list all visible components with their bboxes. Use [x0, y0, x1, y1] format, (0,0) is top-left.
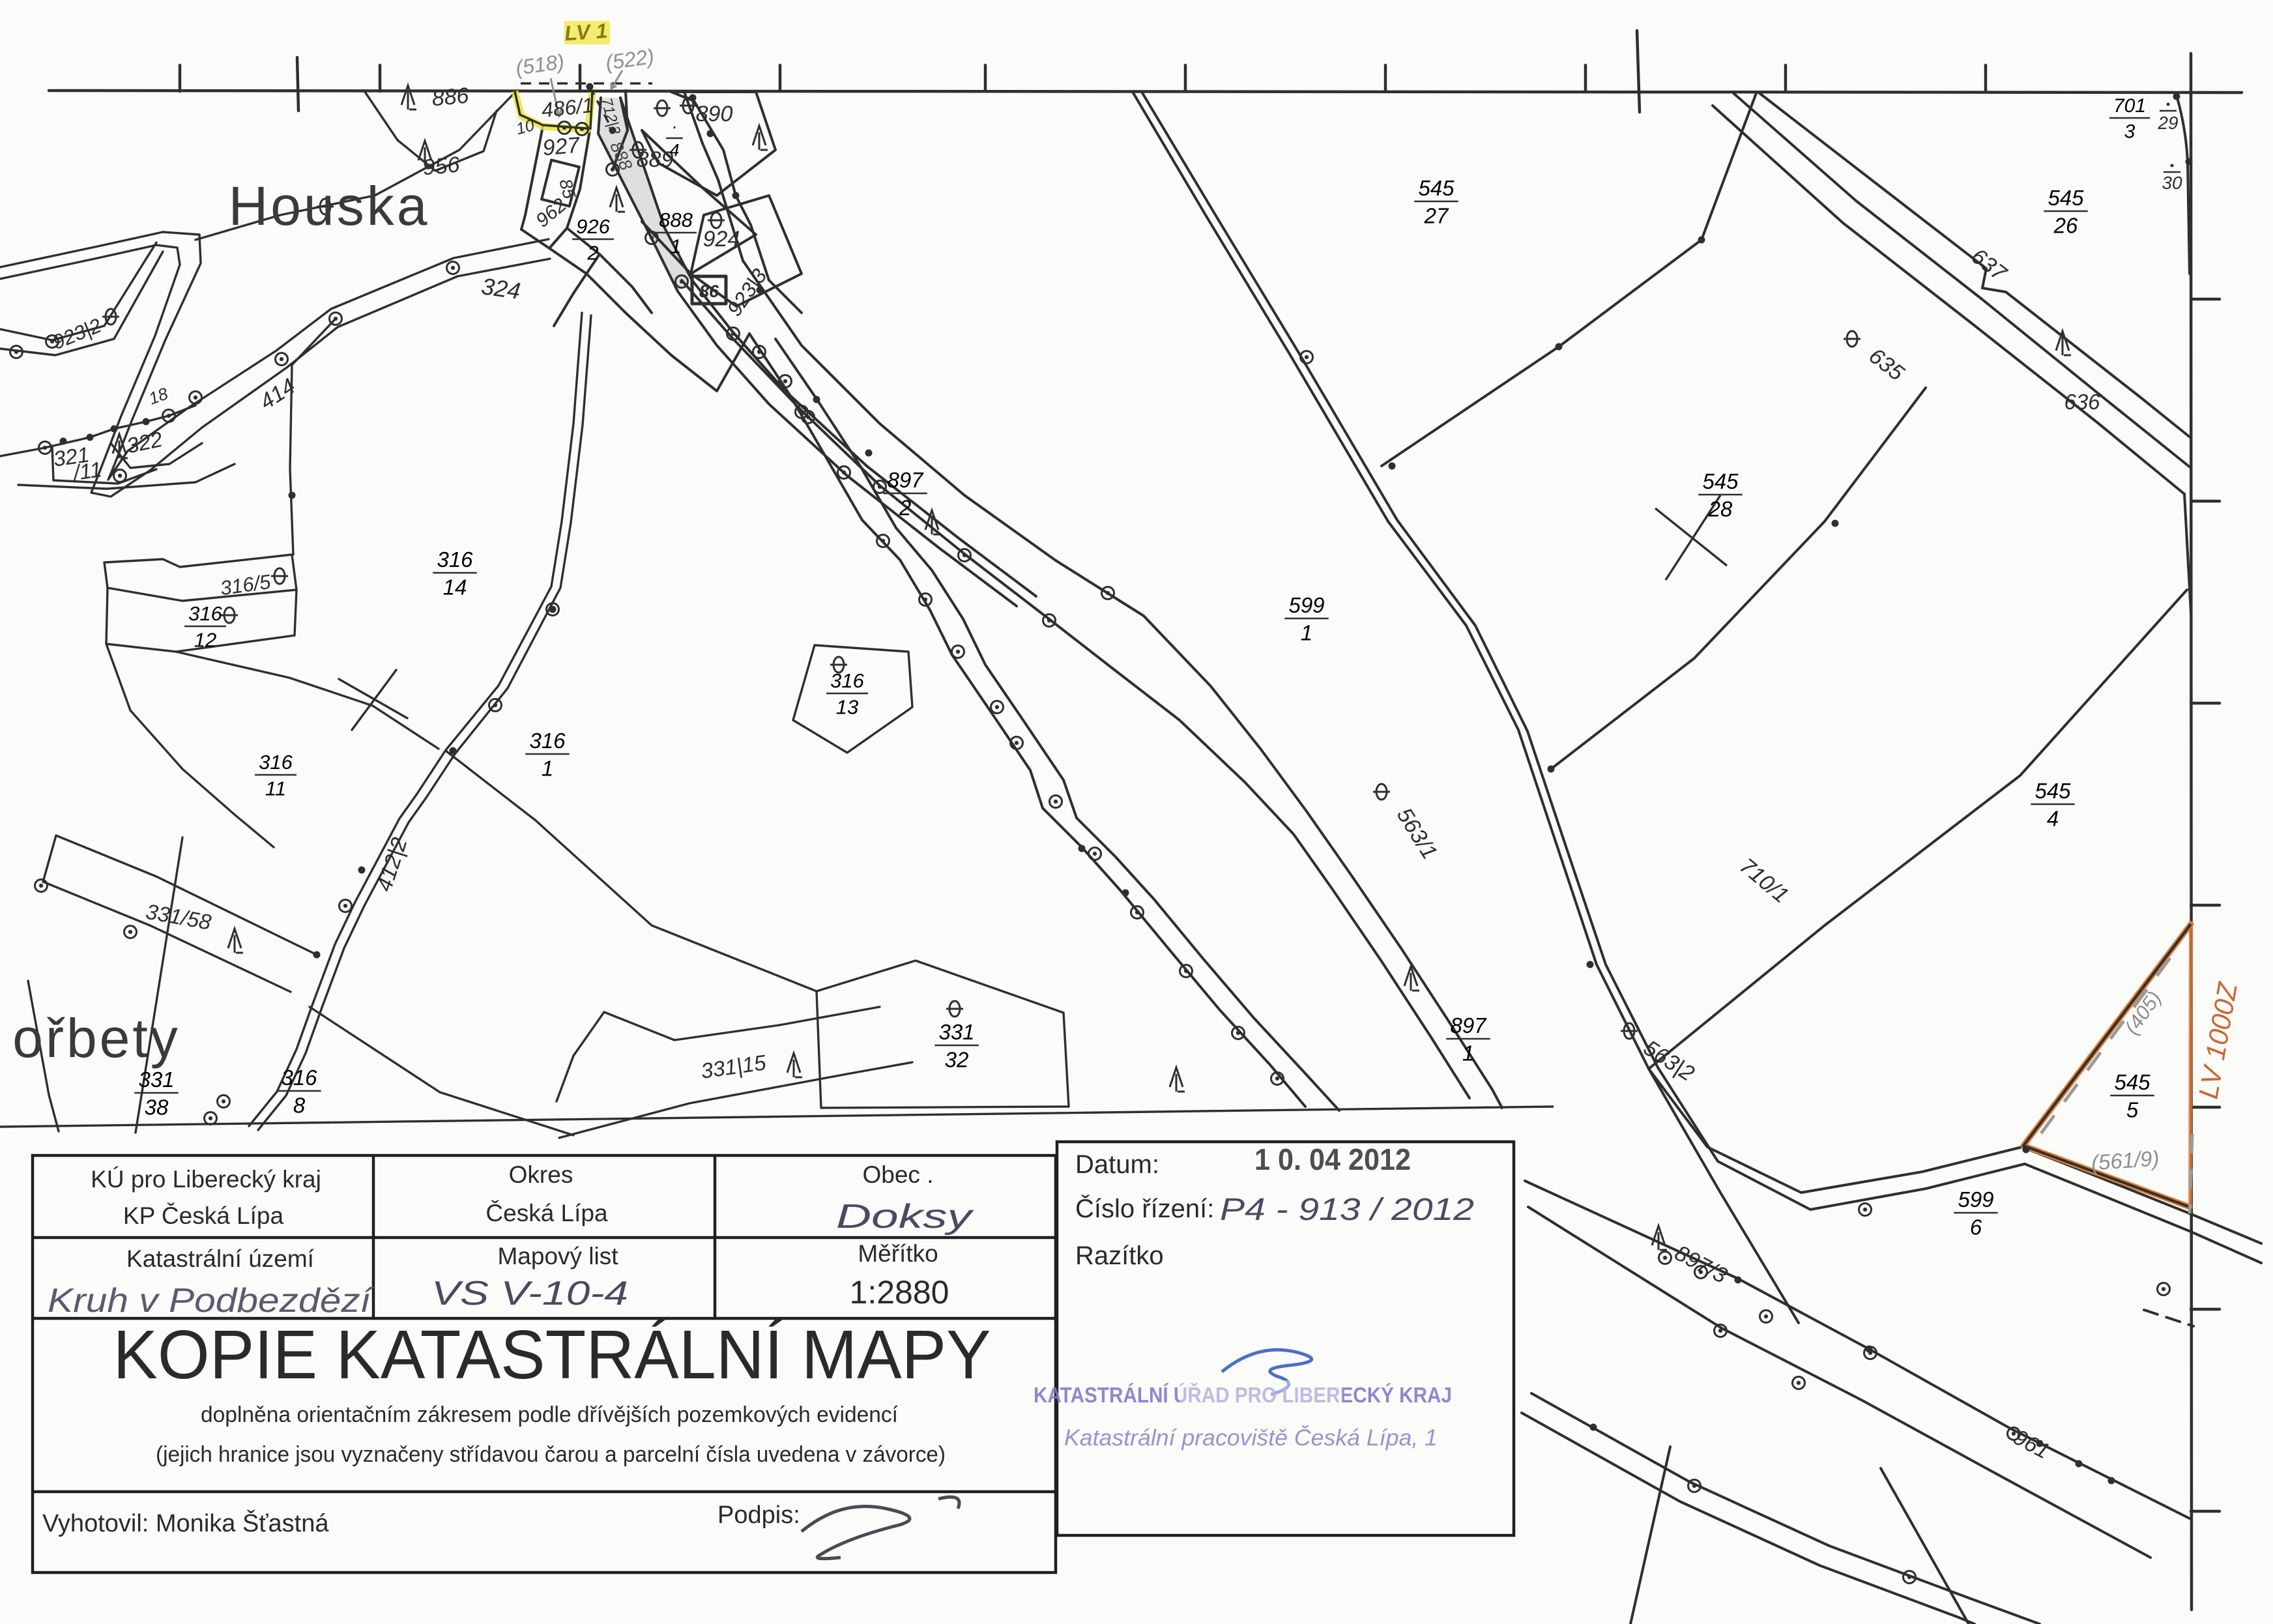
svg-text:30: 30	[2162, 173, 2182, 193]
svg-text:Vyhotovil: Monika Šťastná: Vyhotovil: Monika Šťastná	[42, 1509, 329, 1537]
svg-text:P4 - 913 / 2012: P4 - 913 / 2012	[1220, 1193, 1474, 1227]
svg-text:316: 316	[437, 547, 473, 572]
svg-text:331: 331	[138, 1067, 174, 1092]
svg-text:Česká Lípa: Česká Lípa	[485, 1200, 608, 1226]
svg-text:545: 545	[2114, 1070, 2150, 1094]
svg-text:13: 13	[836, 696, 858, 719]
svg-text:3: 3	[2124, 121, 2135, 143]
svg-text:·: ·	[672, 117, 678, 136]
svg-text:/11: /11	[70, 457, 103, 485]
svg-text:28: 28	[1708, 497, 1733, 521]
svg-text:29: 29	[2157, 113, 2178, 133]
svg-text:331: 331	[938, 1020, 974, 1044]
svg-text:ořbety: ořbety	[12, 1008, 180, 1069]
svg-text:8: 8	[293, 1094, 306, 1118]
svg-text:LV 1: LV 1	[564, 19, 608, 46]
svg-text:4: 4	[2047, 807, 2059, 831]
svg-text:(561/9): (561/9)	[2091, 1146, 2160, 1174]
svg-text:KÚ pro Liberecký kraj: KÚ pro Liberecký kraj	[91, 1166, 321, 1193]
svg-text:Číslo řízení:: Číslo řízení:	[1075, 1194, 1214, 1223]
svg-text:27: 27	[1424, 204, 1449, 228]
svg-text:14: 14	[443, 575, 467, 600]
svg-text:Obec .: Obec .	[863, 1161, 934, 1188]
svg-text:Razítko: Razítko	[1075, 1241, 1164, 1270]
svg-text:897: 897	[887, 468, 924, 492]
svg-text:897: 897	[1450, 1013, 1487, 1037]
svg-text:889: 889	[637, 147, 674, 172]
svg-text:316: 316	[529, 729, 566, 753]
svg-text:VS V-10-4: VS V-10-4	[431, 1275, 628, 1312]
svg-text:701: 701	[2113, 95, 2146, 117]
svg-text:Katastrální pracoviště Česká L: Katastrální pracoviště Česká Lípa, 1	[1064, 1425, 1438, 1451]
svg-text:Kruh v Podbezdězí: Kruh v Podbezdězí	[48, 1282, 374, 1320]
svg-text:12: 12	[194, 629, 216, 652]
svg-text:636: 636	[2064, 390, 2100, 414]
svg-text:1: 1	[542, 757, 553, 781]
svg-text:599: 599	[1288, 593, 1324, 617]
svg-text:2: 2	[899, 496, 911, 520]
svg-text:545: 545	[1418, 176, 1455, 200]
svg-text:316: 316	[259, 751, 293, 774]
svg-text:1:2880: 1:2880	[850, 1274, 949, 1311]
svg-text:316: 316	[188, 602, 222, 625]
svg-text:1: 1	[1301, 621, 1312, 645]
svg-text:1 0. 04 2012: 1 0. 04 2012	[1254, 1142, 1411, 1176]
svg-text:890: 890	[696, 102, 733, 126]
svg-text:2: 2	[586, 242, 598, 265]
svg-text:Doksy: Doksy	[836, 1198, 974, 1236]
svg-text:38: 38	[145, 1095, 169, 1120]
svg-text:4: 4	[669, 141, 679, 160]
svg-text:324: 324	[480, 272, 522, 304]
svg-text:886: 886	[431, 83, 470, 111]
svg-text:927: 927	[542, 133, 581, 161]
svg-text:1: 1	[670, 235, 681, 258]
svg-text:316: 316	[281, 1066, 317, 1090]
svg-text:Mapový list: Mapový list	[497, 1243, 618, 1269]
svg-text:316: 316	[830, 669, 864, 692]
svg-text:(jejich hranice jsou vyznačeny: (jejich hranice jsou vyznačeny střídavou…	[156, 1442, 946, 1467]
svg-text:Podpis:: Podpis:	[717, 1501, 800, 1529]
svg-text:Katastrální území: Katastrální území	[126, 1245, 315, 1272]
svg-text:Houska: Houska	[229, 175, 430, 237]
svg-text:1: 1	[1462, 1041, 1474, 1066]
svg-text:KOPIE KATASTRÁLNÍ MAPY: KOPIE KATASTRÁLNÍ MAPY	[113, 1316, 991, 1393]
svg-text:KP Česká Lípa: KP Česká Lípa	[123, 1202, 284, 1229]
svg-text:5: 5	[2126, 1098, 2139, 1122]
svg-text:545: 545	[2048, 186, 2084, 210]
svg-text:924: 924	[703, 227, 740, 252]
svg-text:32: 32	[945, 1048, 969, 1072]
svg-text:26: 26	[2053, 214, 2078, 238]
svg-text:888: 888	[659, 209, 693, 231]
svg-text:545: 545	[1702, 469, 1739, 493]
svg-text:doplněna orientačním zákresem: doplněna orientačním zákresem podle dřív…	[201, 1402, 899, 1427]
svg-text:Měřítko: Měřítko	[858, 1240, 938, 1267]
svg-text:Okres: Okres	[509, 1161, 573, 1188]
svg-text:Datum:: Datum:	[1075, 1150, 1159, 1179]
svg-text:956: 956	[422, 152, 461, 181]
svg-text:926: 926	[576, 215, 610, 238]
svg-text:86: 86	[699, 282, 719, 301]
svg-text:599: 599	[1958, 1187, 1993, 1211]
svg-text:545: 545	[2034, 779, 2071, 803]
svg-text:6: 6	[1970, 1215, 1982, 1240]
svg-text:11: 11	[265, 777, 286, 800]
